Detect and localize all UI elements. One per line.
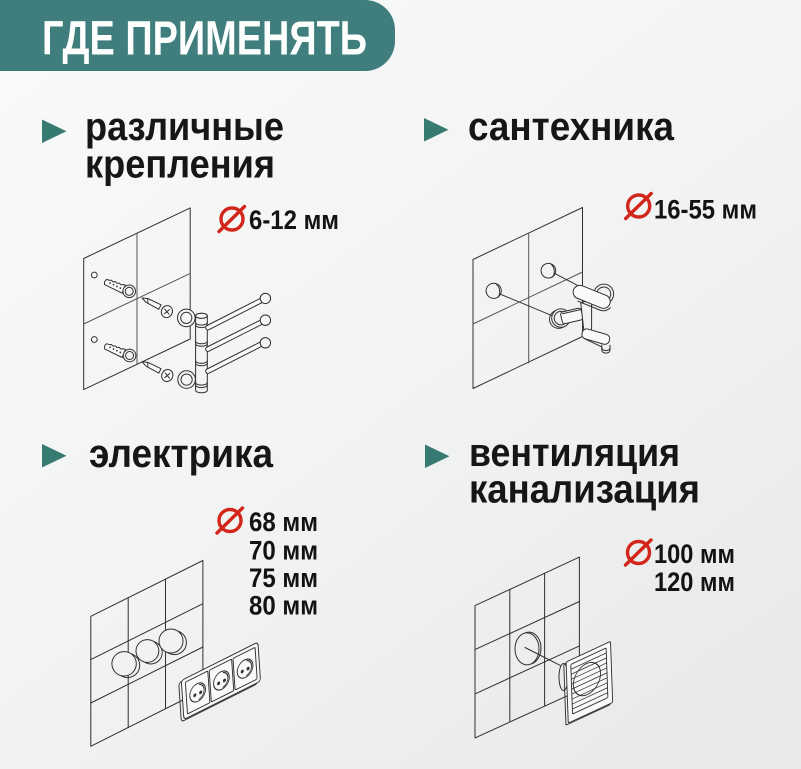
svg-text:канализация: канализация [469, 468, 700, 512]
svg-text:75 мм: 75 мм [249, 563, 318, 593]
svg-text:70 мм: 70 мм [249, 536, 318, 566]
svg-text:120 мм: 120 мм [654, 567, 735, 597]
svg-text:80 мм: 80 мм [249, 591, 318, 621]
svg-text:ГДЕ ПРИМЕНЯТЬ: ГДЕ ПРИМЕНЯТЬ [42, 12, 367, 66]
svg-text:6-12 мм: 6-12 мм [249, 205, 339, 235]
svg-text:сантехника: сантехника [468, 105, 675, 149]
svg-text:электрика: электрика [89, 432, 274, 476]
svg-text:100 мм: 100 мм [654, 539, 735, 569]
svg-text:68 мм: 68 мм [249, 507, 318, 537]
svg-text:16-55 мм: 16-55 мм [654, 195, 757, 225]
svg-text:крепления: крепления [85, 143, 275, 187]
